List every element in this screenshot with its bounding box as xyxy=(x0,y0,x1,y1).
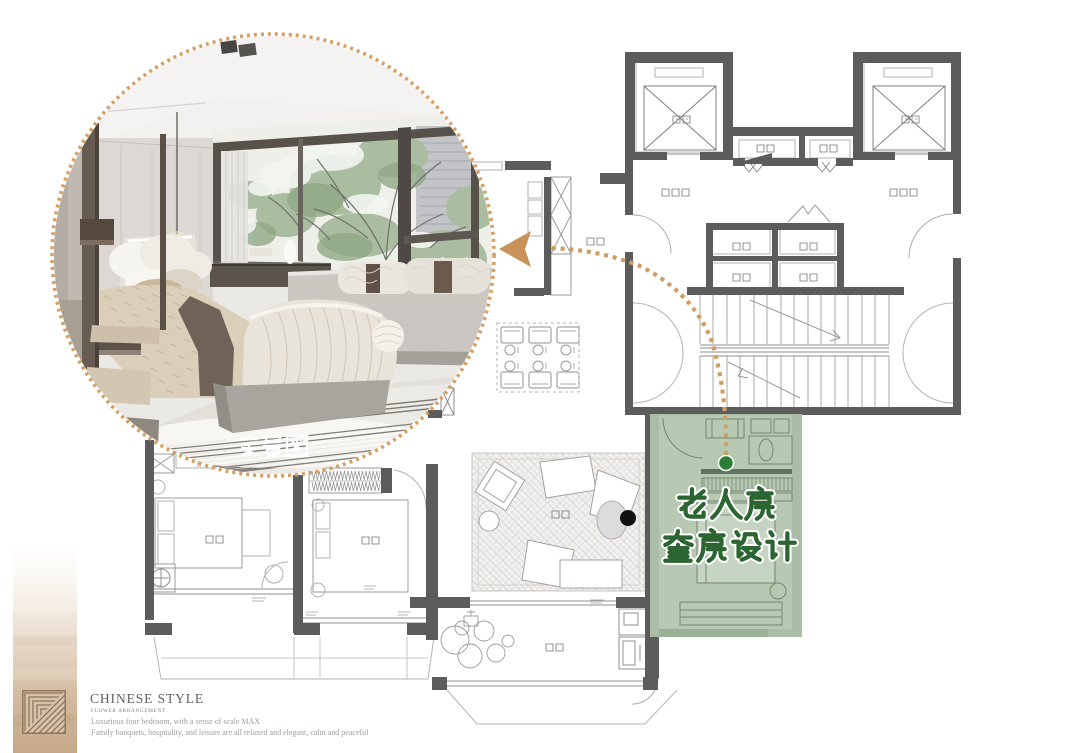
svg-text:Luxurious four bedroom, with a: Luxurious four bedroom, with a sense of … xyxy=(91,717,260,726)
svg-text:Family banquets, hospitality,: Family banquets, hospitality, and leisur… xyxy=(91,728,369,737)
svg-text:FLOWER ARRANGEMENT: FLOWER ARRANGEMENT xyxy=(91,708,166,714)
svg-text:CHINESE STYLE: CHINESE STYLE xyxy=(90,691,204,706)
